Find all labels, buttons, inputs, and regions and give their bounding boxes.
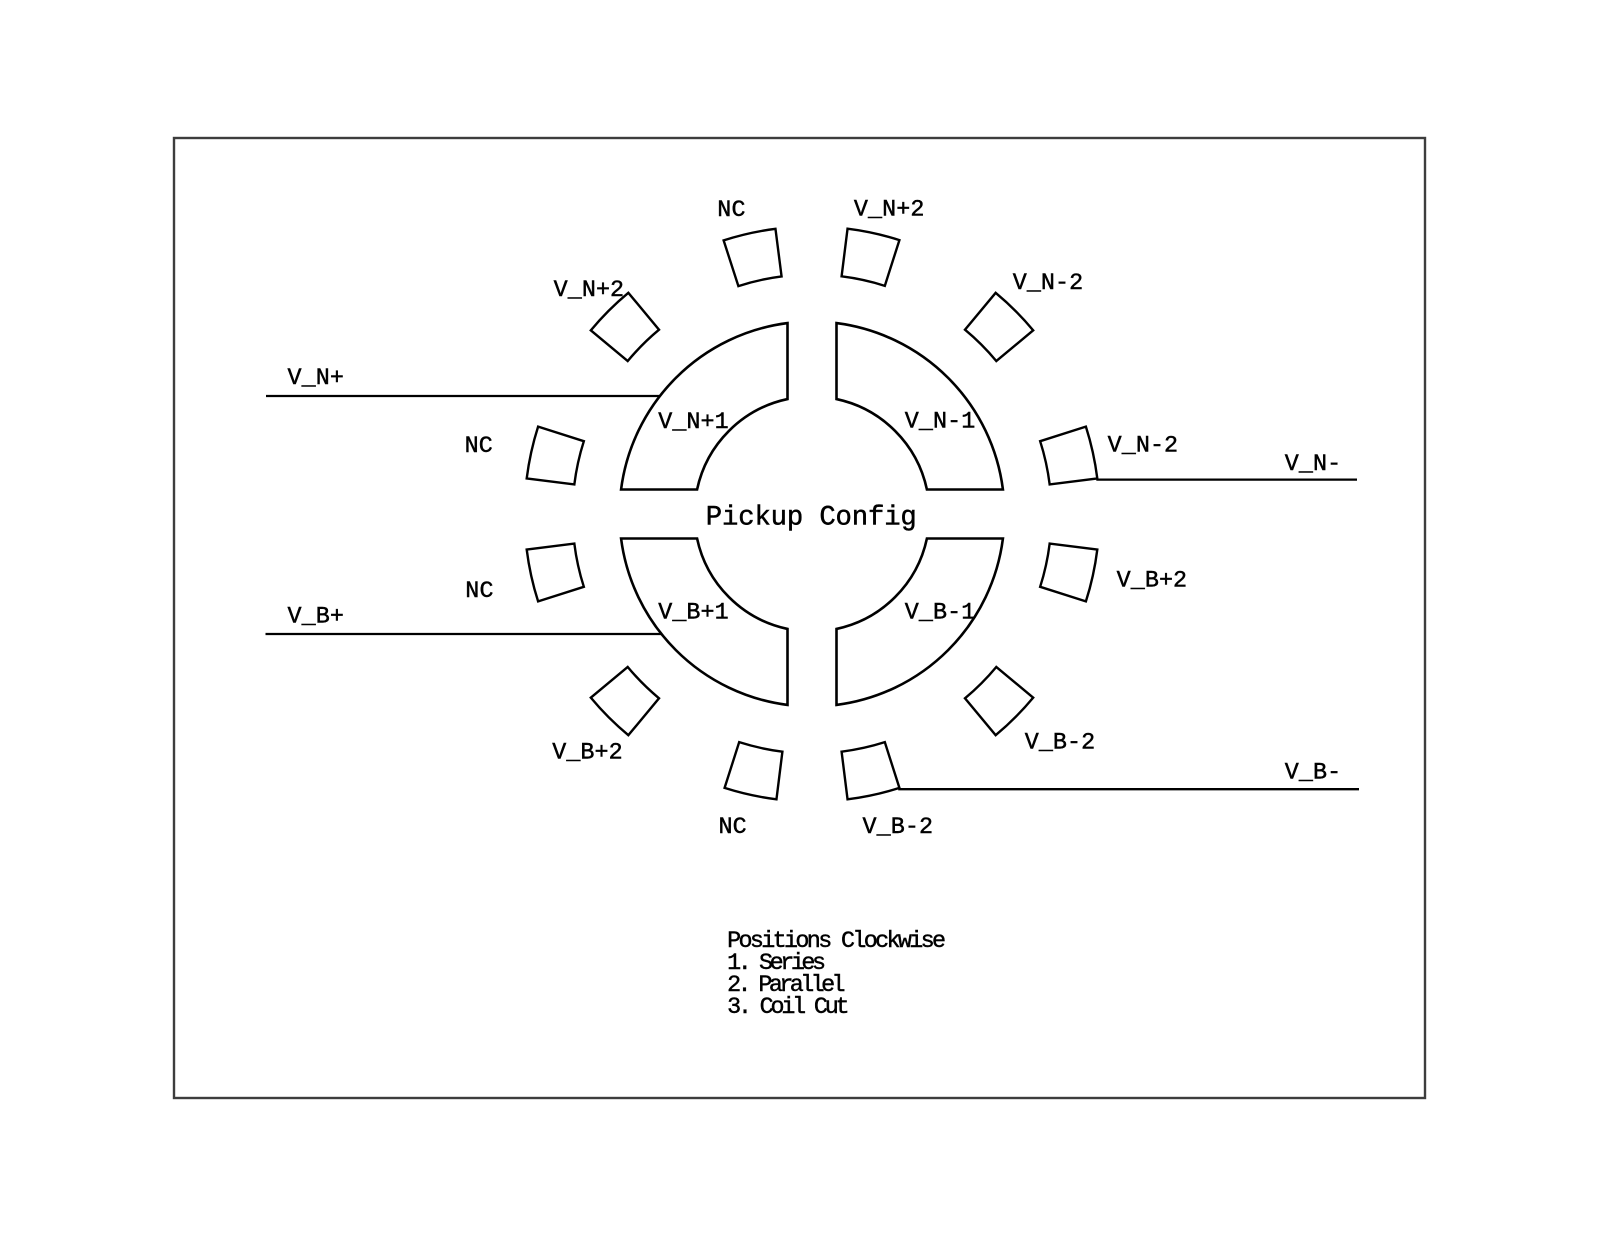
svg-text:3. Coil Cut: 3. Coil Cut — [727, 995, 850, 1021]
svg-text:Pickup Config: Pickup Config — [706, 503, 917, 534]
svg-text:V_N-2: V_N-2 — [1013, 271, 1083, 297]
svg-text:V_B-1: V_B-1 — [905, 600, 976, 626]
svg-text:V_N+2: V_N+2 — [854, 198, 925, 224]
svg-text:NC: NC — [465, 434, 493, 460]
svg-text:V_N+2: V_N+2 — [554, 278, 625, 304]
svg-text:V_N-1: V_N-1 — [905, 409, 976, 435]
svg-text:V_N-: V_N- — [1285, 452, 1341, 478]
svg-text:V_N-2: V_N-2 — [1108, 434, 1179, 460]
svg-text:NC: NC — [465, 579, 493, 605]
svg-text:V_B+: V_B+ — [288, 605, 344, 631]
svg-text:V_B-: V_B- — [1285, 761, 1341, 787]
svg-text:V_B-2: V_B-2 — [863, 815, 934, 841]
svg-text:NC: NC — [717, 198, 745, 224]
svg-text:V_B+2: V_B+2 — [552, 741, 623, 767]
svg-text:V_B+2: V_B+2 — [1117, 569, 1188, 595]
svg-text:V_N+1: V_N+1 — [658, 410, 729, 436]
svg-text:V_B-2: V_B-2 — [1025, 731, 1096, 757]
svg-text:V_B+1: V_B+1 — [658, 601, 729, 627]
svg-text:V_N+: V_N+ — [288, 366, 344, 392]
svg-text:NC: NC — [719, 815, 747, 841]
